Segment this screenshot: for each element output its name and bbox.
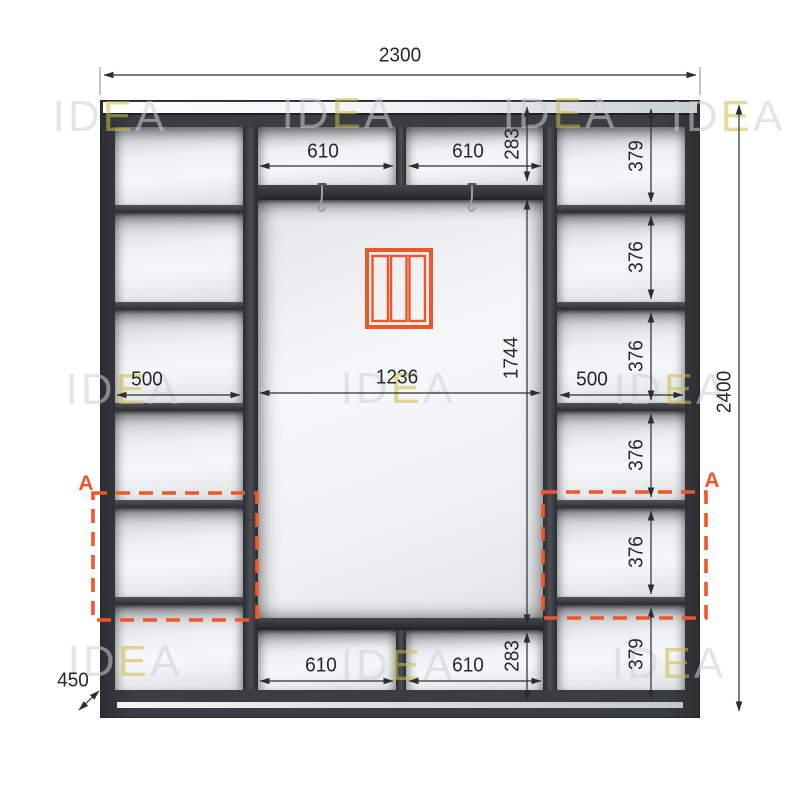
- hanger-hook-icon: [318, 183, 327, 211]
- dim-overall-width-label: 2300: [379, 45, 421, 68]
- dim-right-500-label: 500: [576, 369, 608, 392]
- section-a-marker-right: A: [704, 469, 719, 493]
- dim-left-500-label: 500: [131, 369, 163, 392]
- dim-depth-label: 450: [57, 670, 89, 693]
- dim-shelf-height-label: 376: [626, 241, 649, 273]
- dim-shelf-height-label: 379: [626, 638, 649, 670]
- dim-top-right-610-label: 610: [452, 141, 484, 164]
- dim-center-1236-label: 1236: [376, 367, 418, 390]
- sliding-door-icon: [367, 250, 431, 327]
- dim-shelf-height-label: 376: [626, 536, 649, 568]
- dim-overall-height-label: 2400: [714, 371, 737, 413]
- dim-bottom-right-610-label: 610: [452, 655, 484, 678]
- depth-arrow-icon: [79, 691, 99, 710]
- hanger-hook-icon: [468, 183, 477, 211]
- dimension-overlay: [0, 0, 800, 800]
- dim-shelf-height-label: 376: [626, 340, 649, 372]
- section-a-frame-right: [543, 492, 706, 618]
- dim-top-left-610-label: 610: [307, 141, 339, 164]
- section-a-frame-left: [93, 493, 257, 620]
- dim-shelf-height-label: 379: [626, 140, 649, 172]
- wardrobe-technical-drawing: IDEA IDEA IDEA IDEA IDEA IDEA IDEA IDEA …: [0, 0, 800, 800]
- dim-top-283-label: 283: [502, 128, 525, 160]
- dim-bottom-left-610-label: 610: [305, 655, 337, 678]
- dim-bottom-283-label: 283: [502, 640, 525, 672]
- dim-shelf-height-label: 376: [626, 439, 649, 471]
- section-a-marker-left: A: [78, 472, 93, 496]
- dim-center-1744-label: 1744: [501, 337, 524, 379]
